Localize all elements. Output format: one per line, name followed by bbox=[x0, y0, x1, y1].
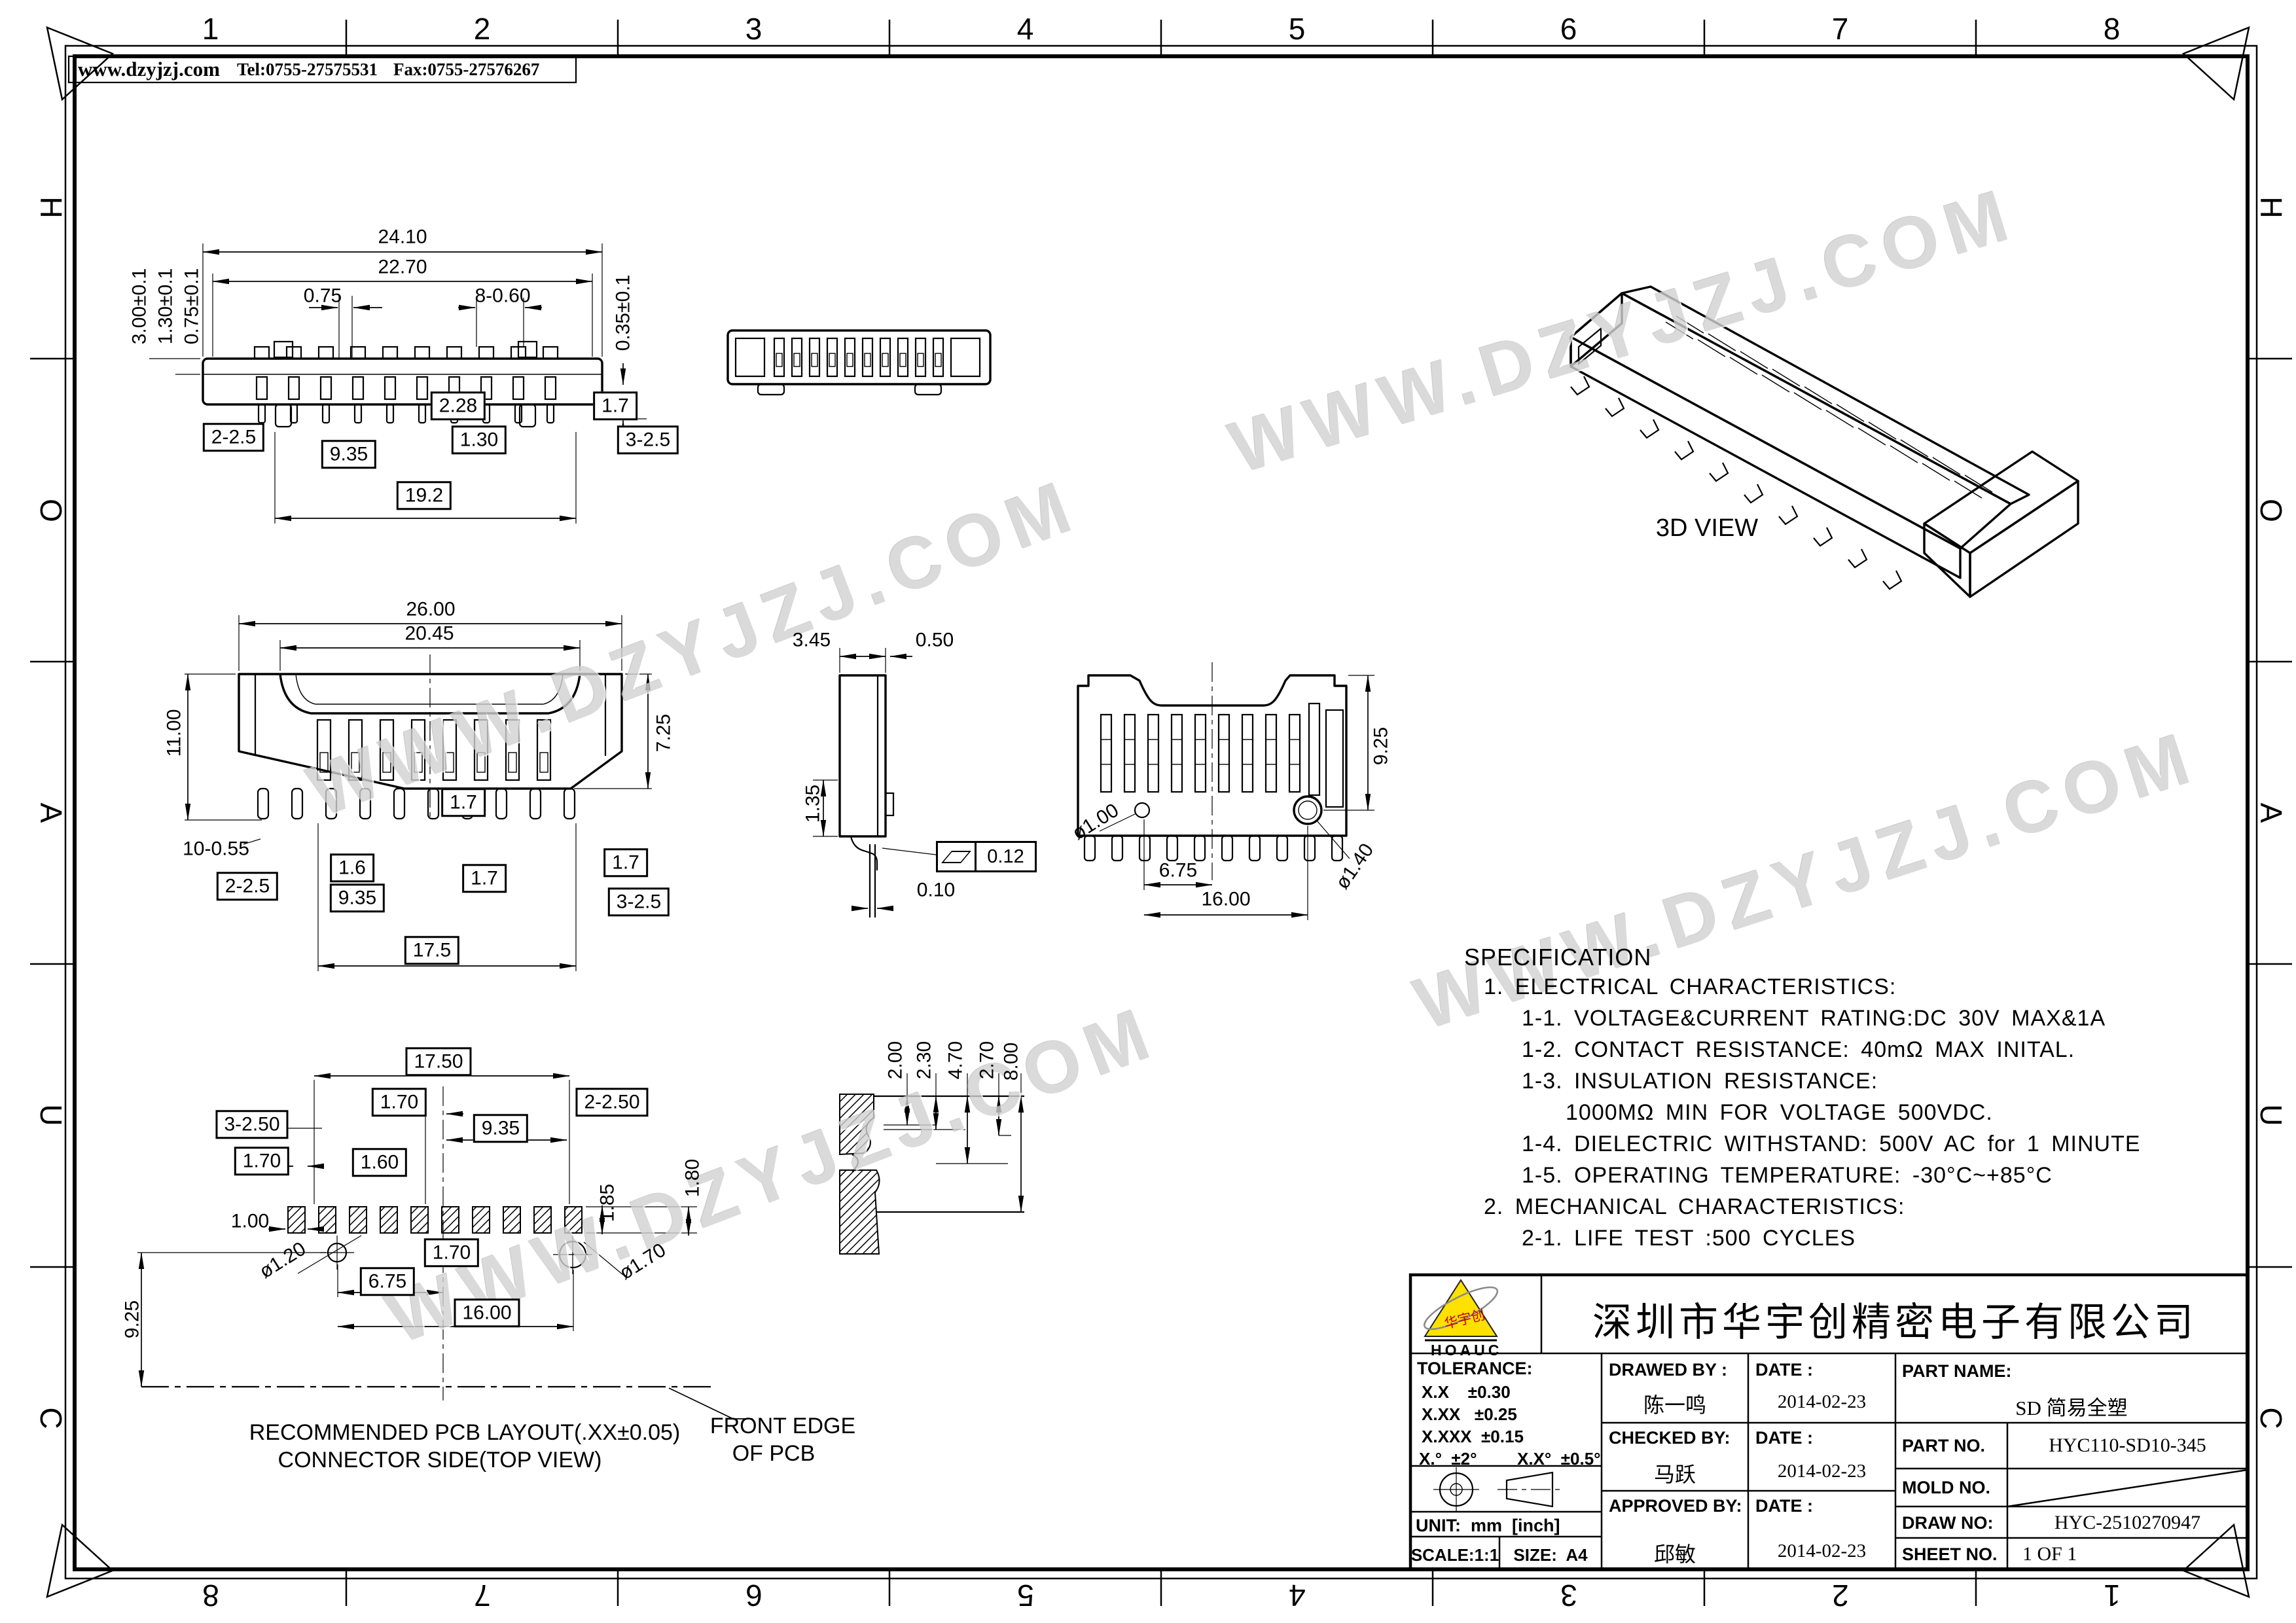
zone-row-left: C bbox=[33, 1407, 69, 1429]
pcb_view-dim-label: 17.50 bbox=[405, 1047, 471, 1076]
zone-col-top: 4 bbox=[1017, 11, 1034, 46]
spec-line: 1-2. CONTACT RESISTANCE: 40mΩ MAX INITAL… bbox=[1522, 1034, 2269, 1065]
tolerance-label: TOLERANCE: bbox=[1417, 1359, 1533, 1379]
pcb_view-dim-label: ø1.20 bbox=[256, 1238, 310, 1282]
front_view-dim-label: 26.00 bbox=[406, 599, 455, 620]
spec-line: 1-3. INSULATION RESISTANCE: bbox=[1522, 1065, 2269, 1097]
spec-line: 2. MECHANICAL CHARACTERISTICS: bbox=[1484, 1191, 2269, 1222]
section_view-dim-label: 2.00 bbox=[885, 1041, 906, 1079]
zone-col-top: 7 bbox=[1832, 11, 1849, 46]
part-no-value: HYC110-SD10-345 bbox=[2007, 1435, 2248, 1457]
tolerance-row-1: X.X ±0.30 bbox=[1422, 1382, 1511, 1402]
part-name-label: PART NAME: bbox=[1902, 1361, 2011, 1382]
logo-mark-text: 华宇创 bbox=[1442, 1304, 1486, 1333]
zone-row-left: A bbox=[33, 803, 69, 823]
top_view-dim-label: 1.7 bbox=[593, 391, 637, 420]
sheet-no-label: SHEET NO. bbox=[1902, 1544, 1998, 1565]
pcb_view-dim-label: FRONT EDGE bbox=[710, 1415, 855, 1438]
spec-line: 1-5. OPERATING TEMPERATURE: -30°C~+85°C bbox=[1522, 1160, 2269, 1191]
approved-by-label: APPROVED BY: bbox=[1609, 1496, 1742, 1516]
rear_view-dim-label: 6.75 bbox=[1159, 860, 1197, 881]
front_view-dim-label: 20.45 bbox=[404, 623, 454, 644]
front_view-dim-label: 9.35 bbox=[330, 883, 385, 912]
front_view-dim-label: 7.25 bbox=[653, 714, 674, 752]
pcb_view-dim-label: 1.70 bbox=[424, 1238, 479, 1267]
flatness-symbol-icon bbox=[938, 843, 977, 870]
date-label-2: DATE : bbox=[1755, 1428, 1813, 1448]
zone-row-left: U bbox=[33, 1105, 69, 1126]
zone-col-bottom: 4 bbox=[1289, 1578, 1306, 1613]
pcb_view-dim-label: 16.00 bbox=[454, 1298, 520, 1327]
zone-row-right: O bbox=[2253, 499, 2289, 522]
watermark-text: WWW.DZYJZJ.COM bbox=[1221, 171, 2026, 490]
spec-title: SPECIFICATION bbox=[1464, 944, 2269, 971]
top_view-dim-label: 0.75 bbox=[304, 285, 342, 306]
front_view-dim-label: 11.00 bbox=[164, 709, 185, 757]
front_view-dim-label: 1.7 bbox=[441, 788, 486, 817]
angle-tolerance-2: X.X° ±0.5° bbox=[1517, 1449, 1601, 1469]
top_view-dim-label: 24.10 bbox=[378, 226, 427, 247]
front_view-dim-label: 1.7 bbox=[462, 864, 507, 893]
zone-col-top: 2 bbox=[474, 11, 491, 46]
top_view-dim-label: 3.00±0.1 bbox=[129, 268, 150, 345]
specification-block: SPECIFICATION 1. ELECTRICAL CHARACTERIST… bbox=[1464, 944, 2269, 1254]
top_view-dim-label: 1.30 bbox=[452, 425, 507, 454]
spec-line: 1-1. VOLTAGE&CURRENT RATING:DC 30V MAX&1… bbox=[1522, 1003, 2269, 1034]
drawn-by-name: 陈一鸣 bbox=[1602, 1389, 1748, 1419]
draw-no-value: HYC-2510270947 bbox=[2007, 1512, 2248, 1534]
zone-col-top: 5 bbox=[1289, 11, 1306, 46]
top_view-dim-label: 2.28 bbox=[431, 391, 486, 420]
front_view-dim-label: 3-2.5 bbox=[608, 887, 670, 916]
zone-col-top: 1 bbox=[202, 11, 219, 46]
fax-text: Fax:0755-27576267 bbox=[393, 60, 539, 80]
flatness-value: 0.12 bbox=[977, 843, 1035, 870]
draw-no-label: DRAW NO: bbox=[1902, 1513, 1993, 1533]
strip-view-drawing bbox=[728, 330, 990, 395]
side_view-dim-label: 0.10 bbox=[917, 880, 955, 901]
top_view-dim-label: 19.2 bbox=[397, 481, 452, 510]
tolerance-row-2: X.XX ±0.25 bbox=[1422, 1404, 1517, 1425]
zone-col-bottom: 2 bbox=[1832, 1578, 1849, 1613]
zone-col-top: 8 bbox=[2104, 11, 2121, 46]
front_view-dim-label: 1.6 bbox=[330, 853, 374, 882]
top_view-dim-label: 3-2.5 bbox=[617, 425, 679, 454]
top_view-dim-label: 1.30±0.1 bbox=[155, 268, 176, 345]
top_view-dim-label: 8-0.60 bbox=[475, 285, 530, 306]
zone-col-top: 3 bbox=[745, 11, 762, 46]
spec-line: 1000MΩ MIN FOR VOLTAGE 500VDC. bbox=[1566, 1097, 2269, 1128]
top_view-dim-label: 2-2.5 bbox=[203, 423, 264, 452]
top_view-dim-label: 0.75±0.1 bbox=[181, 268, 202, 345]
spec-line: 1. ELECTRICAL CHARACTERISTICS: bbox=[1484, 971, 2269, 1003]
top_view-dim-label: 9.35 bbox=[321, 440, 376, 469]
side_view-dim-label: 1.35 bbox=[802, 785, 823, 823]
pcb_view-dim-label: 1.70 bbox=[234, 1147, 289, 1175]
company-name: 深圳市华宇创精密电子有限公司 bbox=[1545, 1291, 2245, 1347]
spec-line: 1-4. DIELECTRIC WITHSTAND: 500V AC for 1… bbox=[1522, 1128, 2269, 1160]
pcb_view-dim-label: 1.85 bbox=[597, 1184, 618, 1222]
pcb_view-dim-label: 3-2.50 bbox=[215, 1110, 288, 1139]
date-label-3: DATE : bbox=[1755, 1496, 1813, 1516]
section_view-dim-label: 2.30 bbox=[914, 1041, 935, 1079]
rear_view-dim-label: 9.25 bbox=[1371, 727, 1391, 765]
zone-row-right: A bbox=[2253, 803, 2289, 823]
drawing-sheet: www.dzyjzj.com Tel:0755-27575531 Fax:075… bbox=[0, 0, 2296, 1623]
tolerance-row-3: X.XXX ±0.15 bbox=[1422, 1427, 1524, 1447]
pcb_view-dim-label: CONNECTOR SIDE(TOP VIEW) bbox=[278, 1449, 602, 1472]
pcb_view-dim-label: 2-2.50 bbox=[575, 1088, 648, 1116]
pcb_view-dim-label: 1.70 bbox=[372, 1088, 427, 1116]
approved-by-name: 邱敏 bbox=[1602, 1538, 1748, 1568]
flatness-tolerance-frame: 0.12 bbox=[936, 841, 1037, 872]
front_view-dim-label: 1.7 bbox=[603, 848, 648, 877]
sheet-no-value: 1 OF 1 bbox=[2022, 1543, 2077, 1565]
approved-date: 2014-02-23 bbox=[1748, 1541, 1895, 1562]
checked-by-label: CHECKED BY: bbox=[1609, 1428, 1731, 1448]
pcb_view-dim-label: 1.60 bbox=[352, 1148, 407, 1177]
mold-no-label: MOLD NO. bbox=[1902, 1478, 1990, 1498]
front_view-dim-label: 10-0.55 bbox=[183, 838, 249, 859]
front_view-dim-label: 2-2.5 bbox=[217, 872, 278, 901]
top_view-dim-label: 22.70 bbox=[378, 257, 427, 277]
zone-col-top: 6 bbox=[1560, 11, 1577, 46]
scale-label: SCALE:1:1 bbox=[1410, 1545, 1499, 1565]
date-label-1: DATE : bbox=[1755, 1360, 1813, 1380]
top_view-dim-label: 0.35±0.1 bbox=[613, 275, 634, 351]
tel-text: Tel:0755-27575531 bbox=[237, 60, 378, 80]
checked-date: 2014-02-23 bbox=[1748, 1461, 1895, 1482]
header-contact-bar: www.dzyjzj.com Tel:0755-27575531 Fax:075… bbox=[69, 56, 576, 82]
website-text: www.dzyjzj.com bbox=[78, 58, 220, 81]
section_view-dim-label: 8.00 bbox=[1001, 1043, 1022, 1080]
rear_view-dim-label: 16.00 bbox=[1201, 889, 1250, 910]
spec-line: 2-1. LIFE TEST :500 CYCLES bbox=[1522, 1222, 2269, 1254]
size-label: SIZE: A4 bbox=[1499, 1545, 1602, 1565]
part-name-value: SD 简易全塑 bbox=[1895, 1391, 2248, 1421]
side-view-drawing bbox=[813, 648, 936, 918]
pcb_view-dim-label: 6.75 bbox=[360, 1267, 415, 1296]
angle-tolerance-1: X.° ±2° bbox=[1419, 1449, 1477, 1469]
pcb_view-dim-label: 9.25 bbox=[122, 1300, 143, 1338]
zone-row-left: H bbox=[33, 197, 69, 219]
brand-text: HOAUC bbox=[1431, 1342, 1502, 1359]
side_view-dim-label: 3.45 bbox=[793, 630, 831, 651]
pcb_view-dim-label: 1.00 bbox=[231, 1211, 269, 1232]
pcb_view-dim-label: 1.80 bbox=[682, 1159, 703, 1197]
zone-row-right: U bbox=[2253, 1105, 2289, 1126]
zone-col-bottom: 3 bbox=[1560, 1578, 1577, 1613]
watermark-text: WWW.DZYJZJ.COM bbox=[298, 462, 1090, 833]
rear_view-dim-label: ø1.00 bbox=[1069, 800, 1122, 844]
section_view-dim-label: 2.70 bbox=[977, 1041, 997, 1079]
drawn-by-label: DRAWED BY : bbox=[1609, 1360, 1727, 1380]
rear_view-dim-label: ø1.40 bbox=[1332, 840, 1378, 893]
rear-view-drawing bbox=[1078, 662, 1374, 920]
zone-col-bottom: 1 bbox=[2104, 1578, 2121, 1613]
pcb_view-dim-label: 9.35 bbox=[473, 1114, 528, 1143]
pcb_view-dim-label: OF PCB bbox=[732, 1442, 816, 1466]
zone-col-bottom: 6 bbox=[745, 1578, 762, 1613]
zone-col-bottom: 8 bbox=[202, 1578, 219, 1613]
zone-col-bottom: 7 bbox=[474, 1578, 491, 1613]
zone-row-left: O bbox=[33, 499, 69, 522]
checked-by-name: 马跃 bbox=[1602, 1458, 1748, 1488]
pcb_view-dim-label: RECOMMENDED PCB LAYOUT(.XX±0.05) bbox=[249, 1421, 680, 1445]
zone-row-right: H bbox=[2253, 197, 2289, 219]
iso_view-dim-label: 3D VIEW bbox=[1656, 516, 1758, 542]
front_view-dim-label: 17.5 bbox=[404, 936, 459, 965]
side_view-dim-label: 0.50 bbox=[916, 630, 954, 651]
section_view-dim-label: 4.70 bbox=[945, 1041, 966, 1079]
zone-col-bottom: 5 bbox=[1017, 1578, 1034, 1613]
zone-row-right: C bbox=[2253, 1407, 2289, 1429]
drawn-date: 2014-02-23 bbox=[1748, 1391, 1895, 1413]
unit-label: UNIT: mm [inch] bbox=[1416, 1516, 1560, 1536]
part-no-label: PART NO. bbox=[1902, 1436, 1985, 1456]
